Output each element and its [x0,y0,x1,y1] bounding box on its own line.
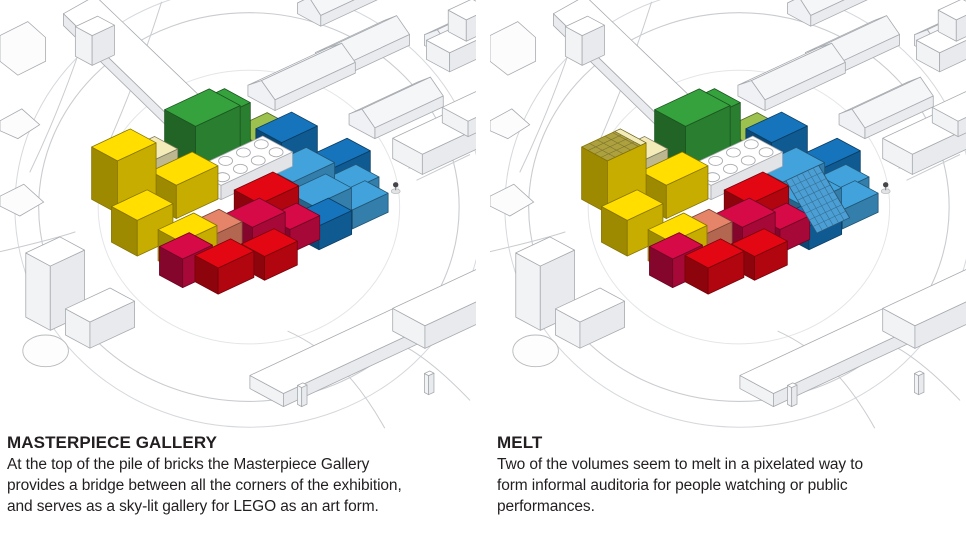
panel-caption: Two of the volumes seem to melt in a pix… [497,454,958,517]
lego-house-model [92,89,389,294]
axonometric-site-diagram-masterpiece-gallery [0,0,476,430]
panel-melt: MELT Two of the volumes seem to melt in … [490,0,966,517]
axonometric-site-diagram-melt [490,0,966,430]
panel-title: MASTERPIECE GALLERY [7,433,468,452]
sculpture-marker [881,182,890,194]
lego-house-diagram-figure: MASTERPIECE GALLERY At the top of the pi… [0,0,966,517]
caption-block: MELT Two of the volumes seem to melt in … [490,430,966,517]
caption-block: MASTERPIECE GALLERY At the top of the pi… [0,430,476,517]
sculpture-marker [391,182,400,194]
panel-caption: At the top of the pile of bricks the Mas… [7,454,468,517]
panel-masterpiece-gallery: MASTERPIECE GALLERY At the top of the pi… [0,0,476,517]
panel-title: MELT [497,433,958,452]
